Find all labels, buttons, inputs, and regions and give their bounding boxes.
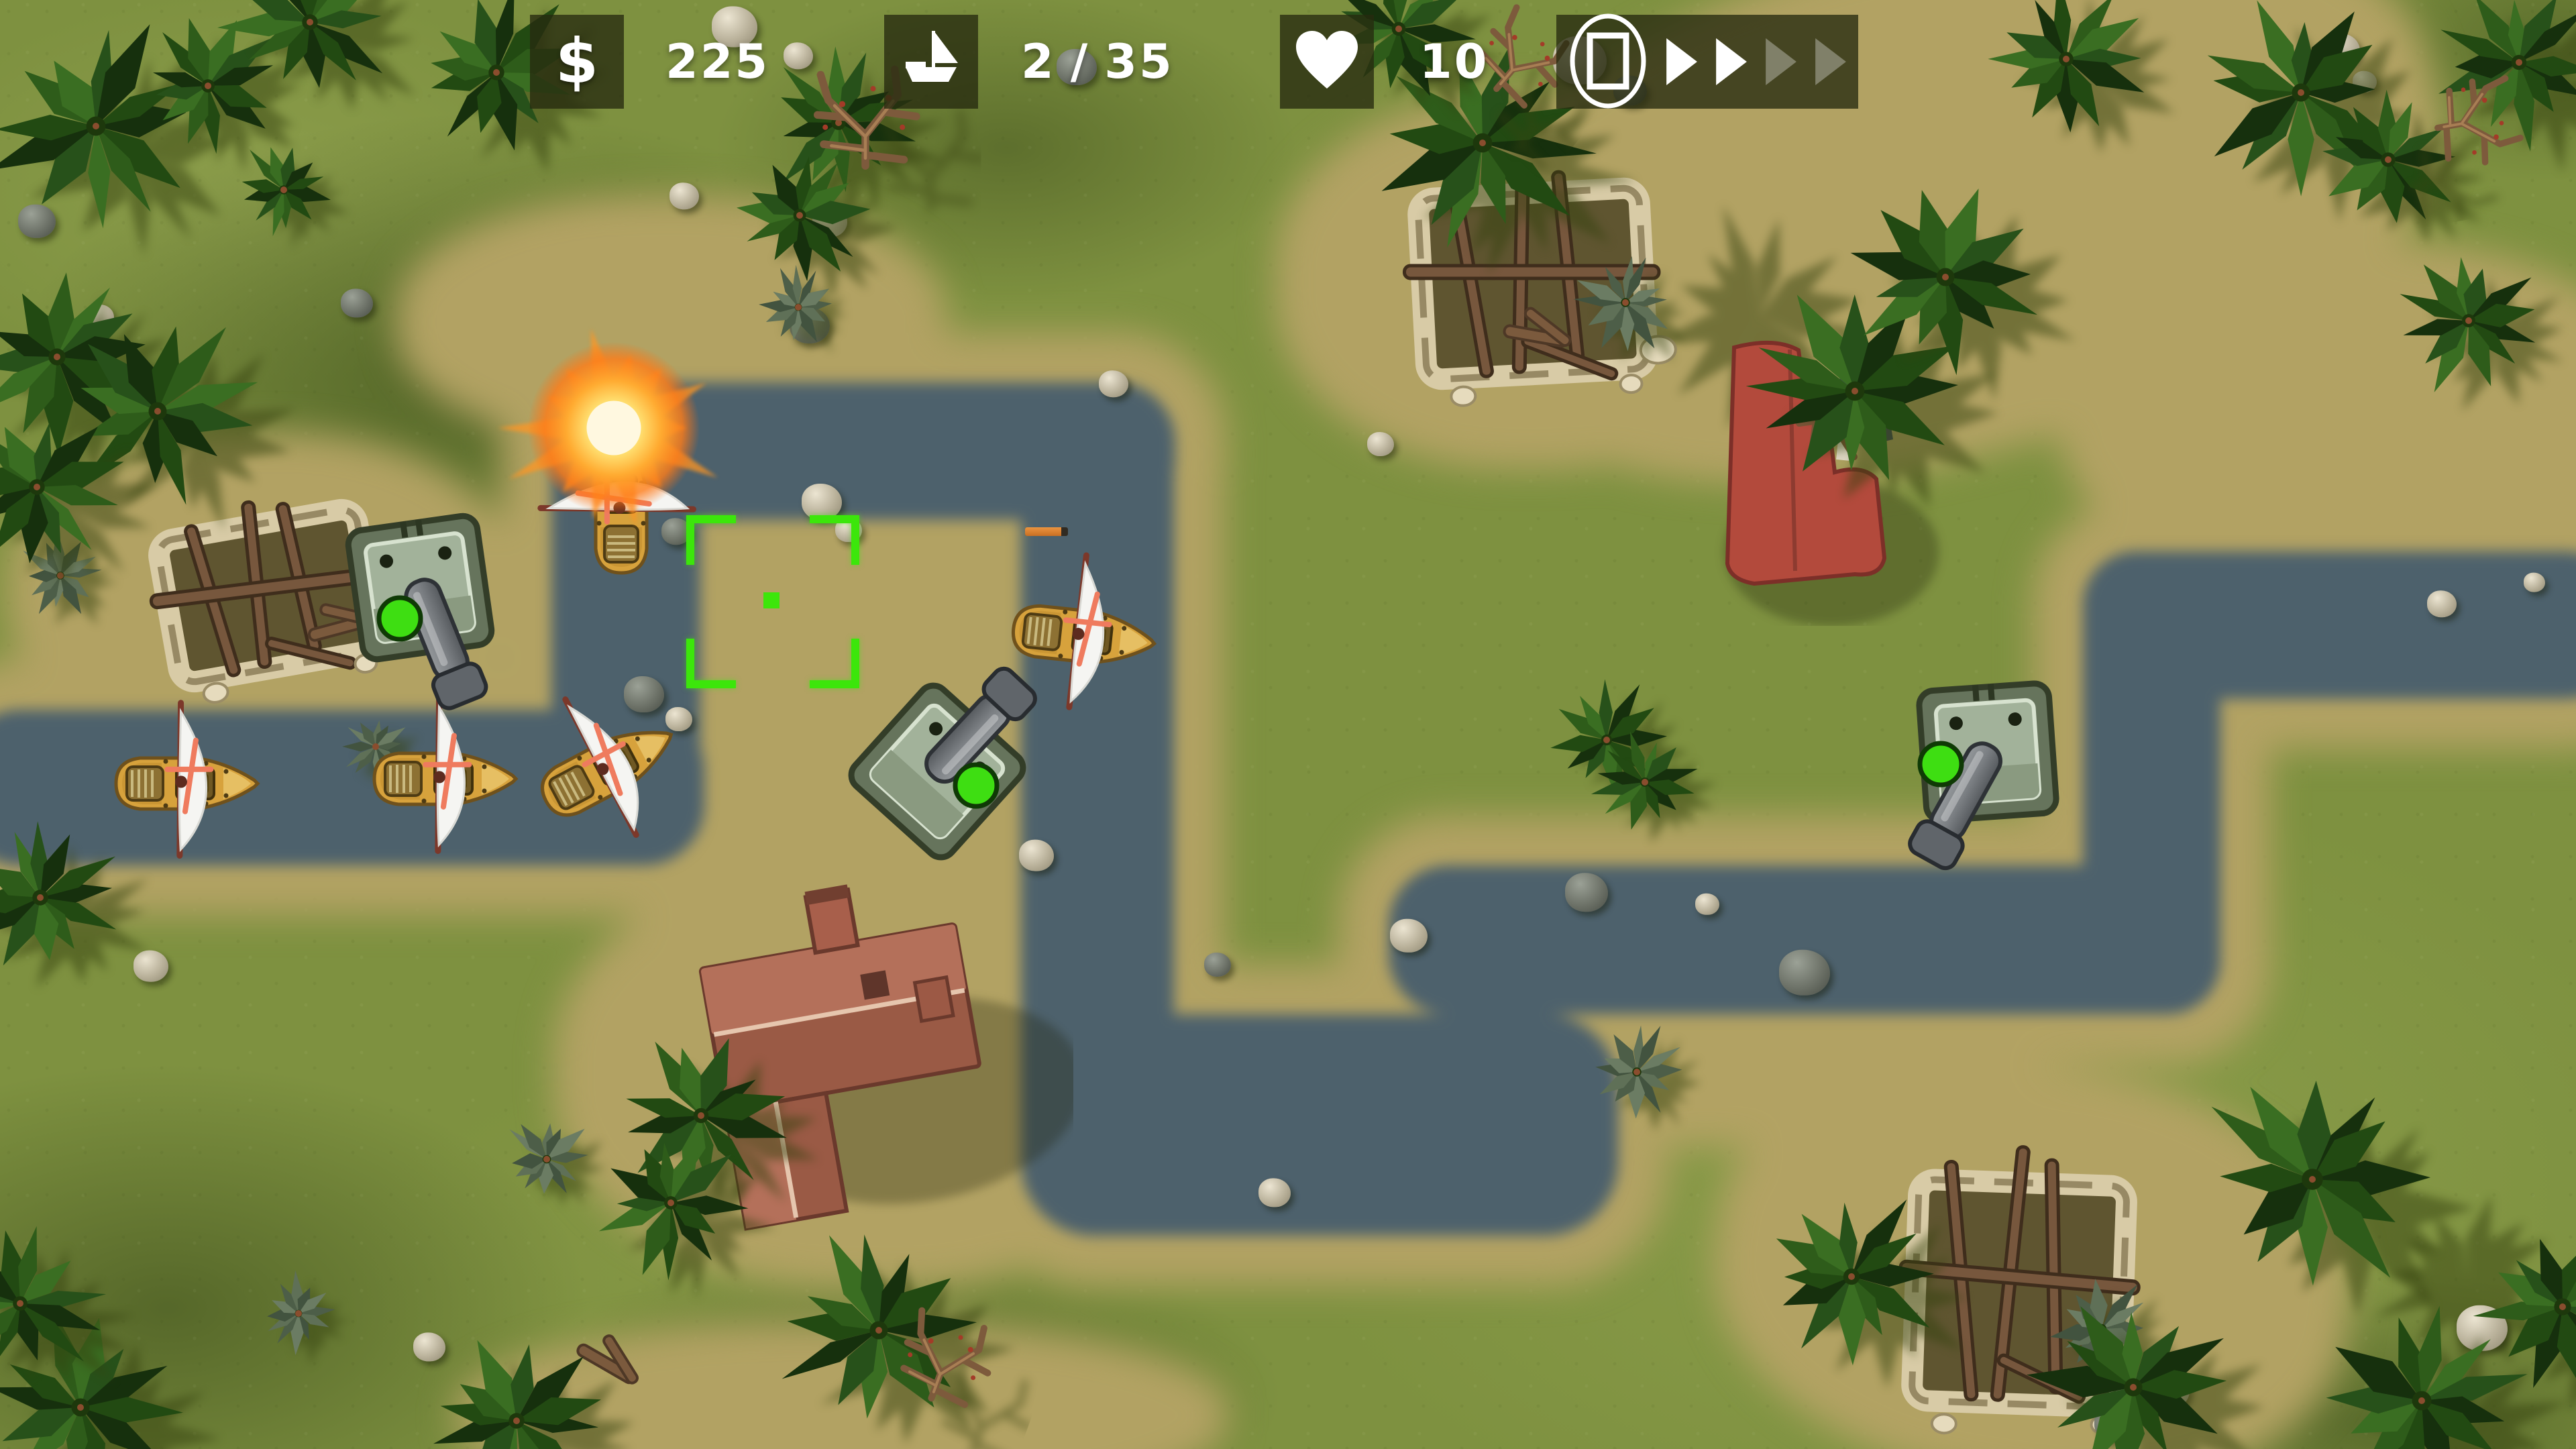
heart-icon: [1293, 30, 1360, 94]
lives-counter: [1280, 15, 1374, 109]
play-icon: [1664, 36, 1699, 87]
play-icon: [1813, 36, 1847, 87]
speed-arrow-1-button[interactable]: [1664, 36, 1699, 87]
speed-controls: [1556, 15, 1858, 109]
wave-total: 35: [1104, 34, 1173, 89]
game-viewport: $ 225 2 / 35: [0, 0, 2576, 1449]
wave-separator: /: [1071, 34, 1090, 89]
speed-arrow-4-button[interactable]: [1813, 36, 1847, 87]
stop-button[interactable]: [1567, 11, 1649, 113]
speed-arrow-2-button[interactable]: [1713, 36, 1748, 87]
lives-value: 10: [1419, 15, 1489, 109]
sailboat-icon: [899, 30, 963, 94]
stop-icon: [1567, 11, 1649, 111]
speed-arrow-3-button[interactable]: [1763, 36, 1798, 87]
dollar-icon: $: [555, 31, 598, 93]
hud: $ 225 2 / 35: [0, 0, 2576, 1449]
wave-counter: [884, 15, 978, 109]
play-icon: [1713, 36, 1748, 87]
speed-arrows: [1664, 36, 1847, 87]
wave-current: 2: [1021, 34, 1056, 89]
play-icon: [1763, 36, 1798, 87]
money-value: 225: [665, 15, 769, 109]
wave-progress: 2 / 35: [1021, 15, 1174, 109]
money-counter: $: [530, 15, 624, 109]
